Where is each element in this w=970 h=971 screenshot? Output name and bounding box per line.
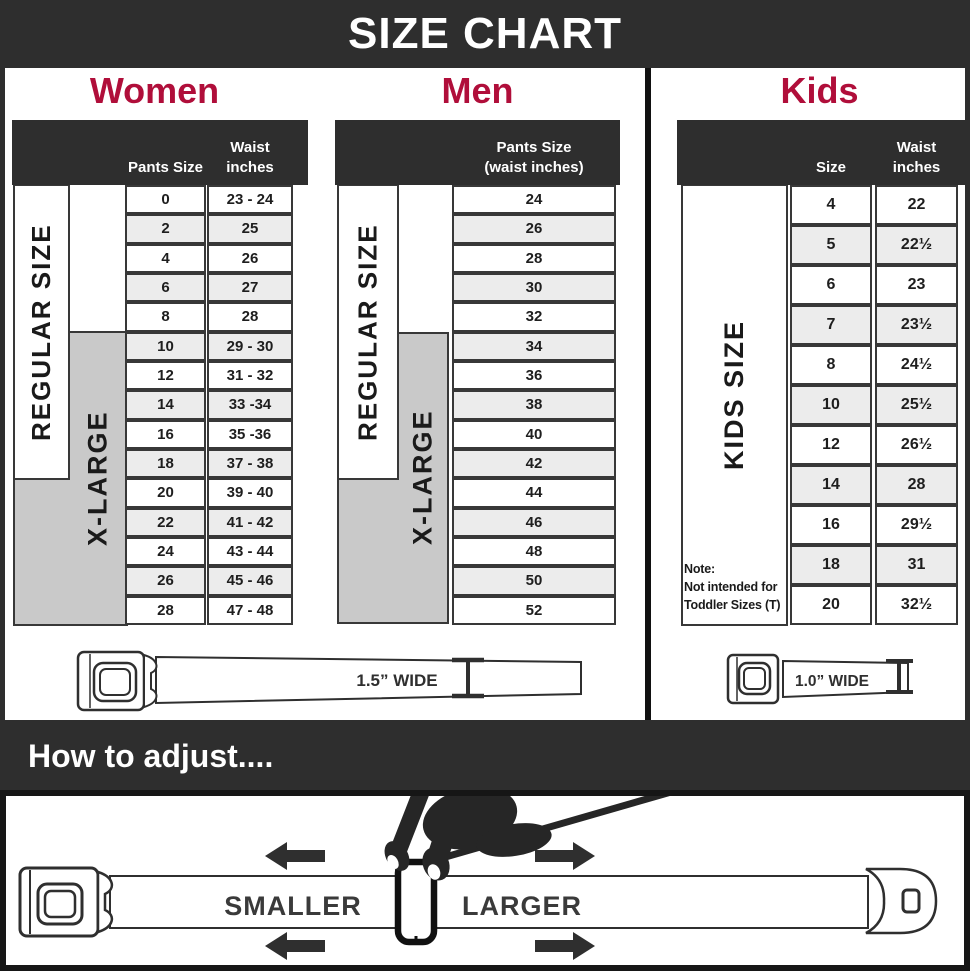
women-section-title: Women xyxy=(12,70,297,112)
pants-size-cell: 14 xyxy=(125,390,206,419)
table-row: 5 22½ xyxy=(790,225,958,265)
table-row: 32 xyxy=(452,302,616,331)
pants-size-cell: 34 xyxy=(452,332,616,361)
kids-note: Note: Not intended for Toddler Sizes (T) xyxy=(684,560,786,614)
table-row: 48 xyxy=(452,537,616,566)
table-row: 2 25 xyxy=(125,214,293,243)
waist-inches-cell: 45 - 46 xyxy=(207,566,293,595)
waist-inches-cell: 39 - 40 xyxy=(207,478,293,507)
table-row: 4 26 xyxy=(125,244,293,273)
table-row: 34 xyxy=(452,332,616,361)
kids-belt-width-label: 1.0” WIDE xyxy=(795,673,869,690)
waist-inches-cell: 23 - 24 xyxy=(207,185,293,214)
kids-size-table: 4 22 5 22½ 6 23 7 23½ 8 24½ xyxy=(790,185,958,625)
women-col-pants-size-header: Pants Size xyxy=(125,120,206,185)
pants-size-cell: 2 xyxy=(125,214,206,243)
table-row: 10 29 - 30 xyxy=(125,332,293,361)
table-row: 22 41 - 42 xyxy=(125,508,293,537)
table-row: 50 xyxy=(452,566,616,595)
size-cell: 8 xyxy=(790,345,872,385)
men-section-title: Men xyxy=(335,70,620,112)
table-row: 28 47 - 48 xyxy=(125,596,293,625)
size-cell: 5 xyxy=(790,225,872,265)
table-row: 30 xyxy=(452,273,616,302)
waist-inches-cell: 27 xyxy=(207,273,293,302)
kids-section-title: Kids xyxy=(677,70,962,112)
table-row: 0 23 - 24 xyxy=(125,185,293,214)
table-row: 6 23 xyxy=(790,265,958,305)
men-header-line2: (waist inches) xyxy=(484,158,583,178)
size-cell: 12 xyxy=(790,425,872,465)
belt-tip xyxy=(866,869,936,933)
waist-inches-cell: 41 - 42 xyxy=(207,508,293,537)
kids-belt-icon: 1.0” WIDE xyxy=(728,655,913,703)
pants-size-cell: 16 xyxy=(125,420,206,449)
table-row: 26 xyxy=(452,214,616,243)
waist-inches-cell: 47 - 48 xyxy=(207,596,293,625)
pants-size-cell: 10 xyxy=(125,332,206,361)
table-row: 14 33 -34 xyxy=(125,390,293,419)
table-row: 8 24½ xyxy=(790,345,958,385)
adjust-illustration: SMALLER LARGER xyxy=(6,796,964,965)
waist-inches-cell: 25½ xyxy=(875,385,958,425)
pants-size-cell: 20 xyxy=(125,478,206,507)
pants-size-cell: 50 xyxy=(452,566,616,595)
table-row: 38 xyxy=(452,390,616,419)
table-row: 16 29½ xyxy=(790,505,958,545)
pants-size-cell: 18 xyxy=(125,449,206,478)
table-row: 46 xyxy=(452,508,616,537)
waist-inches-cell: 26 xyxy=(207,244,293,273)
women-col2-line1: Waist xyxy=(230,138,269,158)
table-row: 52 xyxy=(452,596,616,625)
men-header-line1: Pants Size xyxy=(496,138,571,158)
pants-size-cell: 28 xyxy=(125,596,206,625)
table-row: 24 43 - 44 xyxy=(125,537,293,566)
size-cell: 10 xyxy=(790,385,872,425)
size-chart-page: SIZE CHART 1.5” WIDE xyxy=(0,0,970,971)
table-row: 14 28 xyxy=(790,465,958,505)
waist-inches-cell: 26½ xyxy=(875,425,958,465)
kids-col2-line1: Waist xyxy=(897,138,936,158)
pants-size-cell: 22 xyxy=(125,508,206,537)
women-size-table: 0 23 - 24 2 25 4 26 6 27 8 28 xyxy=(125,185,293,625)
kids-col2-line2: inches xyxy=(893,158,941,178)
pants-size-cell: 40 xyxy=(452,420,616,449)
pants-size-cell: 48 xyxy=(452,537,616,566)
pants-size-cell: 42 xyxy=(452,449,616,478)
table-row: 20 39 - 40 xyxy=(125,478,293,507)
waist-inches-cell: 33 -34 xyxy=(207,390,293,419)
waist-inches-cell: 31 - 32 xyxy=(207,361,293,390)
table-row: 18 31 xyxy=(790,545,958,585)
women-col2-line2: inches xyxy=(226,158,274,178)
table-row: 16 35 -36 xyxy=(125,420,293,449)
waist-inches-cell: 28 xyxy=(207,302,293,331)
kids-note-line2: Not intended for xyxy=(684,578,786,596)
table-row: 24 xyxy=(452,185,616,214)
table-row: 10 25½ xyxy=(790,385,958,425)
waist-inches-cell: 28 xyxy=(875,465,958,505)
pants-size-cell: 24 xyxy=(452,185,616,214)
waist-inches-cell: 31 xyxy=(875,545,958,585)
kids-note-line1: Note: xyxy=(684,560,786,578)
waist-inches-cell: 32½ xyxy=(875,585,958,625)
pants-size-cell: 26 xyxy=(125,566,206,595)
waist-inches-cell: 37 - 38 xyxy=(207,449,293,478)
size-cell: 14 xyxy=(790,465,872,505)
table-row: 8 28 xyxy=(125,302,293,331)
women-regular-size-label: REGULAR SIZE xyxy=(14,185,69,479)
women-col1-label: Pants Size xyxy=(128,158,203,178)
women-xlarge-label: X-LARGE xyxy=(69,332,127,625)
size-cell: 7 xyxy=(790,305,872,345)
pants-size-cell: 8 xyxy=(125,302,206,331)
belt-tip-hole xyxy=(903,890,919,912)
kids-size-label: KIDS SIZE xyxy=(682,185,787,605)
adjust-illustration-panel: SMALLER LARGER xyxy=(0,790,970,971)
table-row: 12 26½ xyxy=(790,425,958,465)
waist-inches-cell: 22½ xyxy=(875,225,958,265)
men-regular-size-label: REGULAR SIZE xyxy=(338,185,398,479)
pants-size-cell: 12 xyxy=(125,361,206,390)
pants-size-cell: 52 xyxy=(452,596,616,625)
waist-inches-cell: 25 xyxy=(207,214,293,243)
table-row: 20 32½ xyxy=(790,585,958,625)
table-row: 36 xyxy=(452,361,616,390)
kids-col1-label: Size xyxy=(816,158,846,178)
table-row: 28 xyxy=(452,244,616,273)
size-cell: 6 xyxy=(790,265,872,305)
hand-icon xyxy=(379,796,685,885)
smaller-label: SMALLER xyxy=(224,891,362,921)
waist-inches-cell: 43 - 44 xyxy=(207,537,293,566)
pants-size-cell: 6 xyxy=(125,273,206,302)
table-row: 6 27 xyxy=(125,273,293,302)
men-xlarge-label: X-LARGE xyxy=(398,332,448,623)
pants-size-cell: 46 xyxy=(452,508,616,537)
waist-inches-cell: 29½ xyxy=(875,505,958,545)
table-row: 12 31 - 32 xyxy=(125,361,293,390)
waist-inches-cell: 22 xyxy=(875,185,958,225)
men-size-table: 24 26 28 30 32 34 36 xyxy=(452,185,616,625)
size-cell: 20 xyxy=(790,585,872,625)
pants-size-cell: 44 xyxy=(452,478,616,507)
pants-size-cell: 38 xyxy=(452,390,616,419)
pants-size-cell: 24 xyxy=(125,537,206,566)
adult-belt-icon: 1.5” WIDE xyxy=(78,652,581,710)
pants-size-cell: 30 xyxy=(452,273,616,302)
waist-inches-cell: 23½ xyxy=(875,305,958,345)
men-col-header: Pants Size (waist inches) xyxy=(452,120,616,185)
kids-note-line3: Toddler Sizes (T) xyxy=(684,596,786,614)
pants-size-cell: 0 xyxy=(125,185,206,214)
size-cell: 4 xyxy=(790,185,872,225)
pants-size-cell: 36 xyxy=(452,361,616,390)
waist-inches-cell: 24½ xyxy=(875,345,958,385)
waist-inches-cell: 23 xyxy=(875,265,958,305)
kids-col-size-header: Size xyxy=(790,120,872,185)
table-row: 40 xyxy=(452,420,616,449)
waist-inches-cell: 35 -36 xyxy=(207,420,293,449)
pants-size-cell: 28 xyxy=(452,244,616,273)
pants-size-cell: 32 xyxy=(452,302,616,331)
pants-size-cell: 26 xyxy=(452,214,616,243)
size-cell: 16 xyxy=(790,505,872,545)
size-cell: 18 xyxy=(790,545,872,585)
kids-col-waist-header: Waist inches xyxy=(875,120,958,185)
waist-inches-cell: 29 - 30 xyxy=(207,332,293,361)
table-row: 26 45 - 46 xyxy=(125,566,293,595)
buckle-icon xyxy=(20,868,112,936)
table-row: 4 22 xyxy=(790,185,958,225)
table-row: 7 23½ xyxy=(790,305,958,345)
pants-size-cell: 4 xyxy=(125,244,206,273)
adult-belt-width-label: 1.5” WIDE xyxy=(356,671,437,690)
how-to-adjust-title: How to adjust.... xyxy=(28,720,273,790)
page-title: SIZE CHART xyxy=(0,0,970,68)
larger-label: LARGER xyxy=(462,891,582,921)
table-row: 44 xyxy=(452,478,616,507)
table-row: 18 37 - 38 xyxy=(125,449,293,478)
women-col-waist-header: Waist inches xyxy=(207,120,293,185)
table-row: 42 xyxy=(452,449,616,478)
